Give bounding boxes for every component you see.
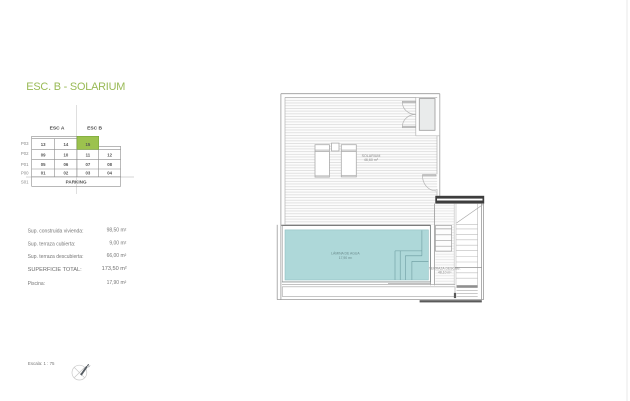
svg-text:S01: S01: [21, 180, 29, 185]
svg-text:17,90 m²: 17,90 m²: [107, 280, 127, 286]
svg-text:17,90 m²: 17,90 m²: [339, 256, 353, 260]
svg-text:ESC B: ESC B: [87, 125, 102, 131]
svg-text:P03: P03: [21, 141, 29, 146]
svg-text:12: 12: [107, 152, 112, 157]
svg-text:48,10 m²: 48,10 m²: [438, 271, 452, 275]
svg-text:Escala: 1 : 75: Escala: 1 : 75: [28, 361, 55, 366]
svg-text:PARKING: PARKING: [66, 179, 87, 184]
svg-text:10: 10: [64, 152, 69, 157]
svg-text:Sup. terraza descubierta:: Sup. terraza descubierta:: [28, 254, 84, 260]
svg-text:P01: P01: [21, 162, 29, 167]
svg-text:Sup. terraza cubierta:: Sup. terraza cubierta:: [28, 241, 76, 247]
svg-text:02: 02: [64, 171, 69, 176]
svg-text:173,50 m²: 173,50 m²: [102, 266, 127, 272]
svg-text:03: 03: [86, 171, 91, 176]
svg-text:04: 04: [107, 171, 112, 176]
svg-text:98,50 m²: 98,50 m²: [107, 228, 127, 234]
svg-text:14: 14: [64, 142, 69, 147]
svg-text:P02: P02: [21, 151, 29, 156]
svg-text:13: 13: [41, 142, 46, 147]
svg-text:11: 11: [86, 152, 91, 157]
svg-text:46,60 m²: 46,60 m²: [364, 158, 379, 162]
svg-text:ESC A: ESC A: [50, 125, 65, 131]
svg-text:01: 01: [41, 171, 46, 176]
svg-text:07: 07: [86, 162, 91, 167]
svg-text:08: 08: [107, 162, 112, 167]
svg-text:66,00 m²: 66,00 m²: [107, 253, 127, 259]
svg-text:P00: P00: [21, 170, 29, 175]
svg-text:ESC. B - SOLARIUM: ESC. B - SOLARIUM: [26, 81, 125, 93]
svg-text:9,00 m²: 9,00 m²: [109, 240, 126, 246]
svg-text:09: 09: [41, 152, 46, 157]
svg-text:06: 06: [64, 162, 69, 167]
svg-text:Sup. construida vivienda:: Sup. construida vivienda:: [28, 229, 84, 235]
svg-text:05: 05: [41, 162, 46, 167]
svg-text:SUPERFICIE TOTAL:: SUPERFICIE TOTAL:: [28, 267, 83, 273]
svg-text:Piscina:: Piscina:: [28, 281, 46, 287]
svg-text:15: 15: [86, 142, 91, 147]
